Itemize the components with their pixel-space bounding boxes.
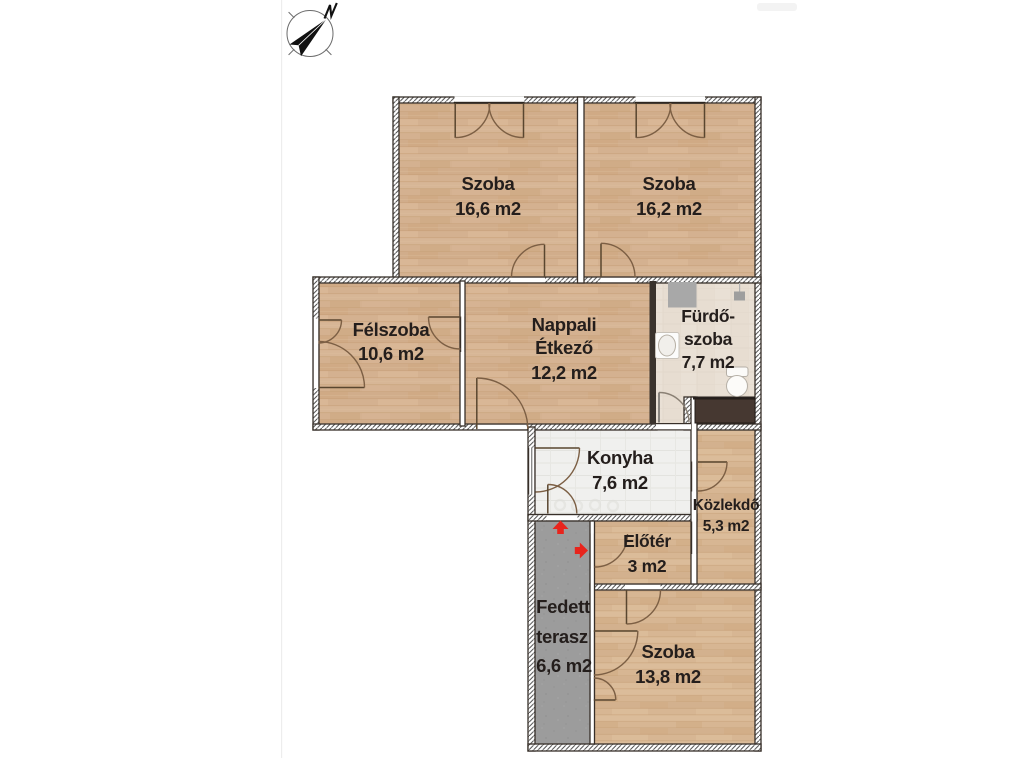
svg-text:Nappali: Nappali [532,314,597,335]
svg-text:Félszoba: Félszoba [353,319,431,340]
svg-text:12,2 m2: 12,2 m2 [531,362,597,383]
svg-text:6,6 m2: 6,6 m2 [536,655,592,676]
svg-text:Szoba: Szoba [642,641,696,662]
svg-text:Konyha: Konyha [587,447,654,468]
svg-text:Fedett: Fedett [536,596,590,617]
svg-text:Szoba: Szoba [643,173,697,194]
svg-text:Közlekdő: Közlekdő [693,497,760,514]
svg-text:16,2 m2: 16,2 m2 [636,198,702,219]
svg-text:Fürdő-: Fürdő- [681,306,735,326]
svg-text:7,6 m2: 7,6 m2 [592,472,648,493]
svg-text:terasz: terasz [536,626,588,647]
svg-text:Előtér: Előtér [623,531,671,551]
svg-text:3 m2: 3 m2 [628,556,667,576]
svg-text:Szoba: Szoba [462,173,516,194]
svg-text:5,3 m2: 5,3 m2 [703,518,749,535]
svg-text:Étkező: Étkező [535,337,593,358]
svg-text:13,8 m2: 13,8 m2 [635,666,701,687]
svg-text:10,6 m2: 10,6 m2 [358,343,424,364]
svg-text:7,7 m2: 7,7 m2 [682,352,735,372]
svg-text:szoba: szoba [684,329,733,349]
svg-text:16,6 m2: 16,6 m2 [455,198,521,219]
